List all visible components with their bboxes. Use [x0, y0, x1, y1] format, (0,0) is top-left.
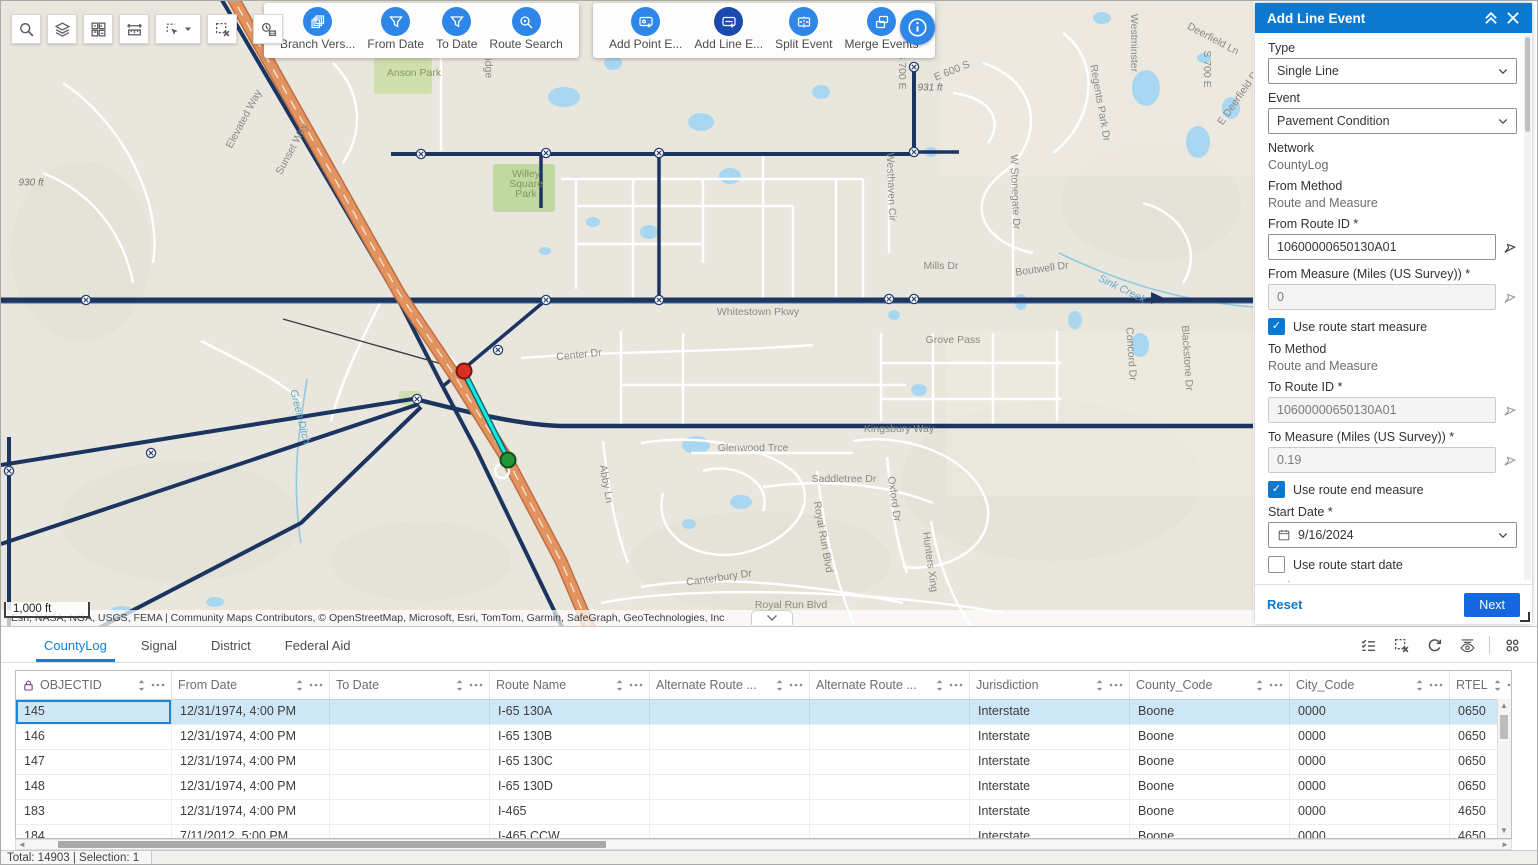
- sort-icon: [1255, 679, 1264, 692]
- column-label: Alternate Route ...: [656, 678, 757, 692]
- dots-icon: [151, 683, 165, 687]
- double-chevron-up-icon: [1483, 10, 1499, 26]
- info-icon: [906, 16, 929, 39]
- map-label: Westhaven Cir: [884, 152, 898, 221]
- table-cell: I-65 130A: [490, 700, 650, 724]
- table-cell: I-65 130B: [490, 725, 650, 749]
- layers-icon: [54, 21, 71, 38]
- column-label: County_Code: [1136, 678, 1212, 692]
- column-label: City_Code: [1296, 678, 1354, 692]
- next-button[interactable]: Next: [1464, 593, 1520, 617]
- table-toolbar: [1355, 632, 1525, 658]
- search-button[interactable]: [11, 14, 41, 44]
- basemap-grid-button[interactable]: [83, 14, 113, 44]
- column-header-alternate-route[interactable]: Alternate Route ...: [810, 671, 970, 699]
- scale-bar: 1,000 ft: [4, 602, 90, 618]
- branch-version-icon: [310, 14, 326, 30]
- branch-version-icon: [303, 7, 332, 36]
- to-measure-label: To Measure (Miles (US Survey)) *: [1268, 430, 1517, 444]
- map-label: Glenwood Trce: [718, 442, 789, 454]
- toggle-columns-button[interactable]: [1454, 632, 1480, 658]
- table-cell: [650, 800, 810, 824]
- table-cell: [810, 775, 970, 799]
- table-status-bar: Total: 14903 | Selection: 1: [1, 850, 1538, 865]
- column-label: Alternate Route ...: [816, 678, 917, 692]
- from-route-id-label: From Route ID *: [1268, 217, 1517, 231]
- reset-button[interactable]: Reset: [1267, 597, 1302, 612]
- table-cell: 12/31/1974, 4:00 PM: [172, 700, 330, 724]
- scroll-right-arrow[interactable]: ►: [1500, 840, 1510, 849]
- table-cell: [810, 800, 970, 824]
- to-route-id-label: To Route ID *: [1268, 380, 1517, 394]
- from-measure-label: From Measure (Miles (US Survey)) *: [1268, 267, 1517, 281]
- use-route-start-date-label: Use route start date: [1293, 558, 1403, 572]
- dots-icon: [629, 683, 643, 687]
- info-button[interactable]: [900, 10, 935, 45]
- query-toolbar: Branch Vers...From DateTo DateRoute Sear…: [264, 3, 579, 58]
- panel-header: Add Line Event: [1255, 3, 1532, 33]
- dots-icon: [469, 683, 483, 687]
- table-cell: [810, 700, 970, 724]
- scroll-left-arrow[interactable]: ◄: [17, 840, 27, 849]
- from-date-button[interactable]: From Date: [361, 7, 430, 51]
- column-header-city-code[interactable]: City_Code: [1290, 671, 1450, 699]
- layers-button[interactable]: [47, 14, 77, 44]
- column-header-route-name[interactable]: Route Name: [490, 671, 650, 699]
- column-header-from-date[interactable]: From Date: [172, 671, 330, 699]
- add-line-event-icon: [714, 7, 743, 36]
- clear-selection-icon: [1393, 637, 1410, 654]
- map-label: Kingsbury Way: [864, 423, 934, 435]
- options-grid-button[interactable]: [1499, 632, 1525, 658]
- refresh-icon: [1426, 637, 1443, 654]
- sort-icon: [455, 679, 464, 692]
- table-row[interactable]: 14712/31/1974, 4:00 PMI-65 130CInterstat…: [16, 750, 1511, 775]
- collapse-panel-button[interactable]: [1480, 7, 1502, 29]
- sort-icon: [1415, 679, 1424, 692]
- table-row[interactable]: 1847/11/2012, 5:00 PMI-465 CCWInterstate…: [16, 825, 1511, 839]
- column-header-alternate-route[interactable]: Alternate Route ...: [650, 671, 810, 699]
- table-cell: Boone: [1130, 725, 1290, 749]
- select-tool-icon: [164, 21, 181, 38]
- table-row[interactable]: 14612/31/1974, 4:00 PMI-65 130BInterstat…: [16, 725, 1511, 750]
- pick-on-map-icon[interactable]: [1502, 403, 1517, 418]
- type-select[interactable]: Single Line: [1268, 58, 1517, 84]
- map-label: 930 ft: [18, 178, 43, 189]
- add-point-event-icon: [631, 7, 660, 36]
- edit-toolbar: Add Point E...Add Line E...Split EventMe…: [593, 3, 935, 58]
- table-vertical-scrollbar[interactable]: ▲ ▼: [1497, 699, 1511, 838]
- map-label: Saddletree Dr: [812, 473, 877, 485]
- map-view[interactable]: 930 ftElevated WaySunset WayAnson ParkWi…: [1, 1, 1253, 626]
- table-cell: [330, 725, 490, 749]
- table-cell: [330, 750, 490, 774]
- to-method-value: Route and Measure: [1268, 359, 1517, 373]
- table-cell: [650, 775, 810, 799]
- split-event-icon: [789, 7, 818, 36]
- network-label: Network: [1268, 141, 1517, 155]
- table-cell: [810, 750, 970, 774]
- tool-label: Route Search: [489, 37, 562, 51]
- column-label: From Date: [178, 678, 237, 692]
- sort-icon: [295, 679, 304, 692]
- add-point-event-icon: [638, 14, 654, 30]
- start-date-value: 9/16/2024: [1298, 528, 1354, 542]
- table-cell: [810, 825, 970, 839]
- panel-title: Add Line Event: [1267, 11, 1480, 26]
- pick-on-map-icon[interactable]: [1502, 290, 1517, 305]
- clear-selection-icon: [214, 21, 231, 38]
- map-label: Westminster: [1128, 14, 1140, 72]
- column-label: RTEL: [1456, 678, 1488, 692]
- time-extent-icon: [260, 21, 277, 38]
- table-cell: Boone: [1130, 700, 1290, 724]
- split-event-icon: [796, 14, 812, 30]
- measure-icon: [126, 21, 143, 38]
- refresh-button[interactable]: [1421, 632, 1447, 658]
- start-date-input[interactable]: 9/16/2024: [1268, 522, 1517, 548]
- table-row[interactable]: 14812/31/1974, 4:00 PMI-65 130DInterstat…: [16, 775, 1511, 800]
- table-cell: Interstate: [970, 725, 1130, 749]
- sort-icon: [935, 679, 944, 692]
- table-cell: [330, 800, 490, 824]
- use-route-start-measure-label: Use route start measure: [1293, 320, 1427, 334]
- table-cell: [810, 725, 970, 749]
- tool-label: From Date: [367, 37, 424, 51]
- table-cell: I-465 CCW: [490, 825, 650, 839]
- column-label: Route Name: [496, 678, 566, 692]
- add-line-event-icon: [721, 14, 737, 30]
- merge-events-icon: [867, 7, 896, 36]
- table-cell: 12/31/1974, 4:00 PM: [172, 775, 330, 799]
- type-value: Single Line: [1277, 64, 1339, 78]
- panel-footer: Reset Next: [1255, 584, 1532, 624]
- close-icon: [1505, 10, 1521, 26]
- tab-district[interactable]: District: [208, 638, 254, 662]
- close-panel-button[interactable]: [1502, 7, 1524, 29]
- from-measure-input[interactable]: [1268, 284, 1496, 310]
- table-cell: I-65 130D: [490, 775, 650, 799]
- table-cell: Interstate: [970, 750, 1130, 774]
- table-cell: 148: [16, 775, 172, 799]
- dots-icon: [1429, 683, 1443, 687]
- divider: [1489, 636, 1490, 654]
- map-label: Anson Park: [387, 67, 441, 79]
- dots-icon: [1269, 683, 1283, 687]
- from-route-id-input[interactable]: [1268, 234, 1496, 260]
- tool-label: Branch Vers...: [280, 37, 355, 51]
- caret-down-icon: [184, 25, 192, 33]
- chevron-down-icon: [1498, 68, 1508, 75]
- table-cell: I-65 130C: [490, 750, 650, 774]
- table-header-row: OBJECTIDFrom DateTo DateRoute NameAltern…: [16, 671, 1511, 700]
- column-label: To Date: [336, 678, 379, 692]
- table-cell: 0000: [1290, 750, 1450, 774]
- to-method-label: To Method: [1268, 342, 1517, 356]
- table-cell: 0000: [1290, 700, 1450, 724]
- table-cell: 147: [16, 750, 172, 774]
- use-route-start-date-checkbox[interactable]: [1268, 556, 1285, 573]
- filter-icon: [442, 7, 471, 36]
- select-tool-button[interactable]: [155, 14, 201, 44]
- chevron-down-icon: [766, 614, 778, 622]
- column-label: Jurisdiction: [976, 678, 1039, 692]
- sort-icon: [1095, 679, 1104, 692]
- sort-icon: [137, 679, 146, 692]
- table-cell: Interstate: [970, 825, 1130, 839]
- add-line-e-button[interactable]: Add Line E...: [688, 7, 769, 51]
- table-cell: Interstate: [970, 775, 1130, 799]
- map-label: Whitestown Pkwy: [717, 306, 799, 318]
- table-cell: [650, 725, 810, 749]
- route-search-icon: [518, 14, 534, 30]
- lock-icon: [22, 679, 35, 692]
- collapse-table-button[interactable]: [751, 610, 793, 625]
- table-cell: Interstate: [970, 800, 1130, 824]
- tool-label: Add Point E...: [609, 37, 682, 51]
- chevron-down-icon: [1498, 532, 1508, 539]
- filter-icon: [381, 7, 410, 36]
- panel-body: Type Single Line Event Pavement Conditio…: [1255, 33, 1523, 582]
- dots-icon: [1507, 683, 1512, 687]
- clear-selection-button[interactable]: [1388, 632, 1414, 658]
- table-cell: 12/31/1974, 4:00 PM: [172, 800, 330, 824]
- dots-icon: [949, 683, 963, 687]
- to-measure-input[interactable]: [1268, 447, 1496, 473]
- event-label: Event: [1268, 91, 1517, 105]
- dots-icon: [1109, 683, 1123, 687]
- scroll-up-arrow[interactable]: ▲: [1498, 700, 1510, 712]
- table-cell: [330, 700, 490, 724]
- table-cell: [650, 750, 810, 774]
- map-label: 931 ft: [917, 83, 942, 94]
- options-grid-icon: [1504, 637, 1521, 654]
- map-label: S 700 E: [1201, 50, 1213, 87]
- tool-label: To Date: [436, 37, 477, 51]
- record-count-status: Total: 14903 | Selection: 1: [1, 851, 152, 865]
- panel-resize-handle[interactable]: [1520, 612, 1530, 622]
- use-route-end-measure-label: Use route end measure: [1293, 483, 1424, 497]
- measure-button[interactable]: [119, 14, 149, 44]
- sort-icon: [1493, 679, 1502, 692]
- table-cell: I-465: [490, 800, 650, 824]
- panel-scrollbar[interactable]: [1524, 35, 1531, 580]
- to-route-id-input[interactable]: [1268, 397, 1496, 423]
- column-header-county-code[interactable]: County_Code: [1130, 671, 1290, 699]
- split-event-button[interactable]: Split Event: [769, 7, 838, 51]
- table-cell: Boone: [1130, 750, 1290, 774]
- table-tabs: CountyLogSignalDistrictFederal Aid: [1, 627, 1538, 663]
- table-cell: Boone: [1130, 775, 1290, 799]
- calendar-icon: [1277, 528, 1291, 542]
- event-editor-app: 930 ftElevated WaySunset WayAnson ParkWi…: [0, 0, 1538, 865]
- table-horizontal-scrollbar[interactable]: ◄ ►: [15, 839, 1512, 850]
- tab-federal-aid[interactable]: Federal Aid: [282, 638, 354, 662]
- attribute-table: OBJECTIDFrom DateTo DateRoute NameAltern…: [15, 670, 1512, 839]
- table-cell: 0000: [1290, 725, 1450, 749]
- scroll-down-arrow[interactable]: ▼: [1498, 825, 1510, 837]
- column-header-rtel[interactable]: RTEL: [1450, 671, 1512, 699]
- table-cell: 0000: [1290, 825, 1450, 839]
- start-date-label: Start Date *: [1268, 505, 1517, 519]
- chevron-down-icon: [1498, 118, 1508, 125]
- clear-selection-button[interactable]: [207, 14, 237, 44]
- column-label: OBJECTID: [40, 678, 102, 692]
- table-row[interactable]: 18312/31/1974, 4:00 PMI-465InterstateBoo…: [16, 800, 1511, 825]
- table-cell: 12/31/1974, 4:00 PM: [172, 750, 330, 774]
- route-search-icon: [512, 7, 541, 36]
- map-label: Grove Pass: [926, 334, 981, 346]
- filter-icon: [388, 14, 404, 30]
- table-row[interactable]: 14512/31/1974, 4:00 PMI-65 130AInterstat…: [16, 700, 1511, 725]
- toggle-columns-icon: [1459, 637, 1476, 654]
- show-selection-button[interactable]: [1355, 632, 1381, 658]
- table-body: 14512/31/1974, 4:00 PMI-65 130AInterstat…: [16, 700, 1511, 839]
- table-cell: [650, 825, 810, 839]
- time-extent-button[interactable]: [253, 14, 283, 44]
- attribute-table-section: CountyLogSignalDistrictFederal Aid OBJEC…: [1, 626, 1538, 865]
- map-toolbar: [11, 14, 283, 44]
- tab-countylog[interactable]: CountyLog: [41, 638, 110, 662]
- map-label: W Stonegate Dr: [1008, 154, 1023, 229]
- table-cell: [330, 775, 490, 799]
- end-date-label: End Date: [1268, 580, 1517, 582]
- from-method-value: Route and Measure: [1268, 196, 1517, 210]
- table-cell: 0000: [1290, 775, 1450, 799]
- dots-icon: [309, 683, 323, 687]
- map-label: WilleySquarePark: [500, 169, 552, 199]
- dots-icon: [789, 683, 803, 687]
- column-header-to-date[interactable]: To Date: [330, 671, 490, 699]
- table-cell: Interstate: [970, 700, 1130, 724]
- table-cell: Boone: [1130, 800, 1290, 824]
- table-cell: 146: [16, 725, 172, 749]
- pick-on-map-icon[interactable]: [1502, 240, 1517, 255]
- sort-icon: [775, 679, 784, 692]
- from-method-label: From Method: [1268, 179, 1517, 193]
- pick-on-map-icon[interactable]: [1502, 453, 1517, 468]
- basemap-grid-icon: [90, 21, 107, 38]
- network-value: CountyLog: [1268, 158, 1517, 172]
- table-cell: 7/11/2012, 5:00 PM: [172, 825, 330, 839]
- table-cell: [650, 700, 810, 724]
- table-cell: 183: [16, 800, 172, 824]
- show-selection-icon: [1360, 637, 1377, 654]
- map-label: Mills Dr: [924, 260, 959, 272]
- merge-events-icon: [874, 14, 890, 30]
- route-search-button[interactable]: Route Search: [483, 7, 568, 51]
- tool-label: Add Line E...: [694, 37, 763, 51]
- table-cell: 12/31/1974, 4:00 PM: [172, 725, 330, 749]
- event-value: Pavement Condition: [1277, 114, 1390, 128]
- column-header-objectid[interactable]: OBJECTID: [16, 671, 172, 699]
- filter-icon: [449, 14, 465, 30]
- table-cell: [330, 825, 490, 839]
- to-date-button[interactable]: To Date: [430, 7, 483, 51]
- add-line-event-panel: Add Line Event Type Single Line Event Pa…: [1255, 3, 1532, 624]
- add-point-e-button[interactable]: Add Point E...: [603, 7, 688, 51]
- column-header-jurisdiction[interactable]: Jurisdiction: [970, 671, 1130, 699]
- basemap: [1, 1, 1253, 626]
- use-route-end-measure-checkbox[interactable]: ✓: [1268, 481, 1285, 498]
- search-icon: [18, 21, 35, 38]
- tab-signal[interactable]: Signal: [138, 638, 180, 662]
- sort-icon: [615, 679, 624, 692]
- table-cell: 0000: [1290, 800, 1450, 824]
- branch-vers-button[interactable]: Branch Vers...: [274, 7, 361, 51]
- table-cell: Boone: [1130, 825, 1290, 839]
- use-route-start-measure-checkbox[interactable]: ✓: [1268, 318, 1285, 335]
- type-label: Type: [1268, 41, 1517, 55]
- tool-label: Split Event: [775, 37, 832, 51]
- table-cell: 184: [16, 825, 172, 839]
- table-cell: 145: [16, 700, 172, 724]
- event-select[interactable]: Pavement Condition: [1268, 108, 1517, 134]
- map-attribution: Esri, NASA, NGA, USGS, FEMA | Community …: [1, 610, 1253, 626]
